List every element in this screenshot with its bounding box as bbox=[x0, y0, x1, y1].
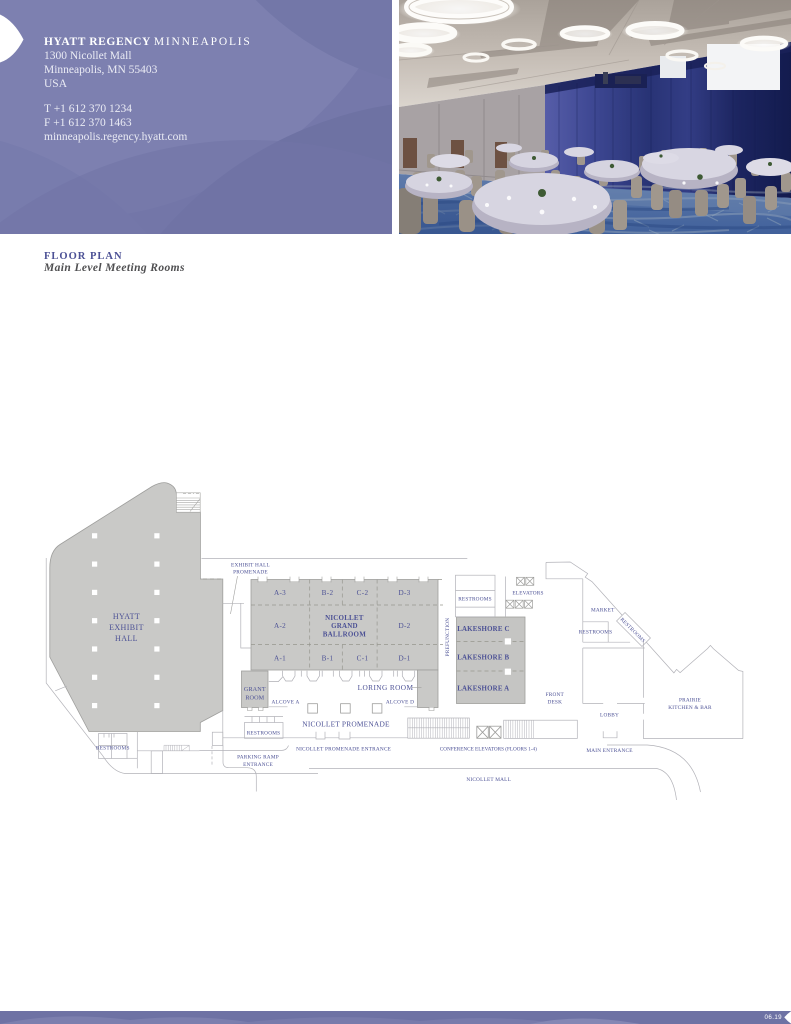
svg-text:B-1: B-1 bbox=[322, 655, 334, 663]
svg-text:DESK: DESK bbox=[547, 700, 562, 706]
svg-text:A-3: A-3 bbox=[274, 589, 286, 597]
svg-text:ENTRANCE: ENTRANCE bbox=[243, 762, 273, 768]
svg-text:A-1: A-1 bbox=[274, 655, 286, 663]
svg-text:EXHIBIT: EXHIBIT bbox=[109, 623, 144, 632]
svg-text:ELEVATORS: ELEVATORS bbox=[512, 591, 543, 597]
svg-text:ALCOVE A: ALCOVE A bbox=[272, 700, 300, 706]
svg-text:C-1: C-1 bbox=[357, 655, 369, 663]
svg-text:LORING ROOM: LORING ROOM bbox=[358, 683, 414, 692]
svg-text:C-2: C-2 bbox=[357, 589, 369, 597]
svg-text:NICOLLET PROMENADE ENTRANCE: NICOLLET PROMENADE ENTRANCE bbox=[296, 747, 391, 753]
svg-text:B-2: B-2 bbox=[322, 589, 334, 597]
svg-text:KITCHEN & BAR: KITCHEN & BAR bbox=[668, 705, 712, 711]
svg-text:D-2: D-2 bbox=[398, 622, 410, 630]
svg-text:MAIN ENTRANCE: MAIN ENTRANCE bbox=[586, 748, 632, 754]
svg-text:HYATT: HYATT bbox=[113, 612, 140, 621]
svg-text:RESTROOMS: RESTROOMS bbox=[458, 597, 492, 603]
svg-text:LAKESHORE C: LAKESHORE C bbox=[457, 626, 510, 633]
svg-text:ALCOVE D: ALCOVE D bbox=[386, 700, 414, 706]
svg-text:PRAIRIE: PRAIRIE bbox=[679, 698, 701, 704]
svg-text:NICOLLET MALL: NICOLLET MALL bbox=[466, 777, 511, 783]
svg-text:PROMENADE: PROMENADE bbox=[233, 570, 268, 576]
svg-text:GRAND: GRAND bbox=[331, 622, 358, 630]
svg-text:PARKING RAMP: PARKING RAMP bbox=[237, 755, 279, 761]
svg-text:PREFUNCTION: PREFUNCTION bbox=[445, 618, 451, 657]
svg-text:CONFERENCE ELEVATORS (FLOORS 1: CONFERENCE ELEVATORS (FLOORS 1-4) bbox=[440, 746, 537, 753]
svg-text:NICOLLET: NICOLLET bbox=[325, 614, 364, 622]
svg-text:RESTROOMS: RESTROOMS bbox=[247, 731, 281, 737]
svg-text:RESTROOMS: RESTROOMS bbox=[579, 630, 613, 636]
svg-text:D-3: D-3 bbox=[398, 589, 410, 597]
svg-text:RESTROOMS: RESTROOMS bbox=[96, 746, 130, 752]
svg-text:LAKESHORE B: LAKESHORE B bbox=[457, 654, 509, 661]
svg-text:ROOM: ROOM bbox=[245, 695, 264, 702]
svg-text:MARKET: MARKET bbox=[591, 608, 615, 614]
svg-text:NICOLLET PROMENADE: NICOLLET PROMENADE bbox=[302, 720, 390, 729]
svg-text:LOBBY: LOBBY bbox=[600, 713, 619, 719]
svg-text:FRONT: FRONT bbox=[546, 692, 565, 698]
svg-text:EXHIBIT HALL: EXHIBIT HALL bbox=[231, 563, 270, 569]
svg-text:HALL: HALL bbox=[115, 634, 138, 643]
svg-text:A-2: A-2 bbox=[274, 622, 286, 630]
svg-text:LAKESHORE A: LAKESHORE A bbox=[457, 685, 509, 692]
svg-text:D-1: D-1 bbox=[398, 655, 410, 663]
svg-text:BALLROOM: BALLROOM bbox=[323, 630, 366, 638]
svg-text:GRANT: GRANT bbox=[244, 686, 266, 693]
